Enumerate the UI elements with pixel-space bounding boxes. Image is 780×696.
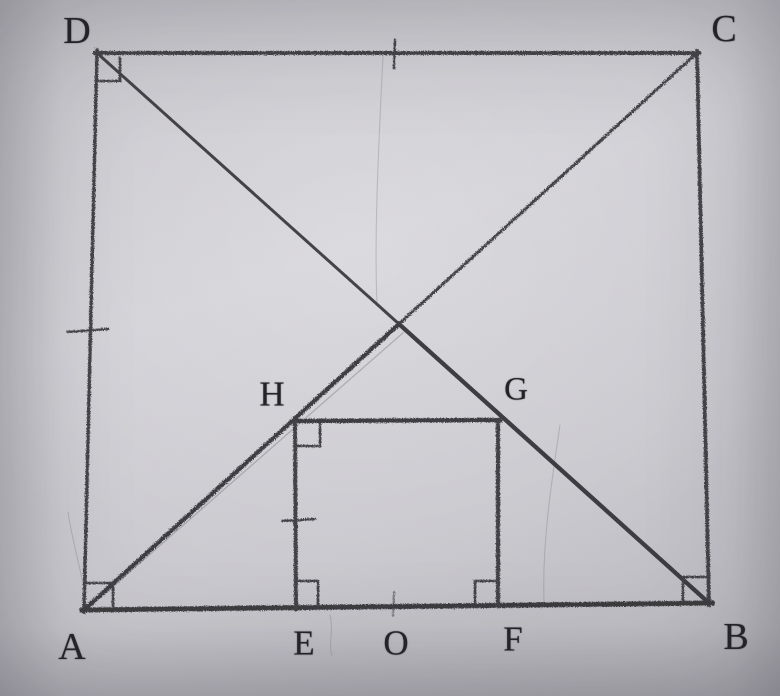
point-label-G: G [504, 374, 528, 407]
geometry-figure-svg [0, 0, 780, 696]
point-label-A: A [58, 628, 85, 666]
side-HG [294, 420, 500, 421]
paper-grain-texture [0, 0, 780, 696]
point-label-E: E [293, 626, 314, 661]
point-label-F: F [503, 622, 522, 657]
side-HE [295, 421, 296, 609]
tick-point-O [393, 592, 394, 616]
diagram-canvas: D C A B H G E O F [0, 0, 780, 696]
point-label-O: O [383, 626, 408, 661]
point-label-C: C [711, 10, 736, 48]
point-label-H: H [259, 377, 284, 412]
point-label-D: D [63, 12, 90, 50]
point-label-B: B [723, 618, 748, 656]
tick-midpoint-DC [394, 40, 395, 68]
